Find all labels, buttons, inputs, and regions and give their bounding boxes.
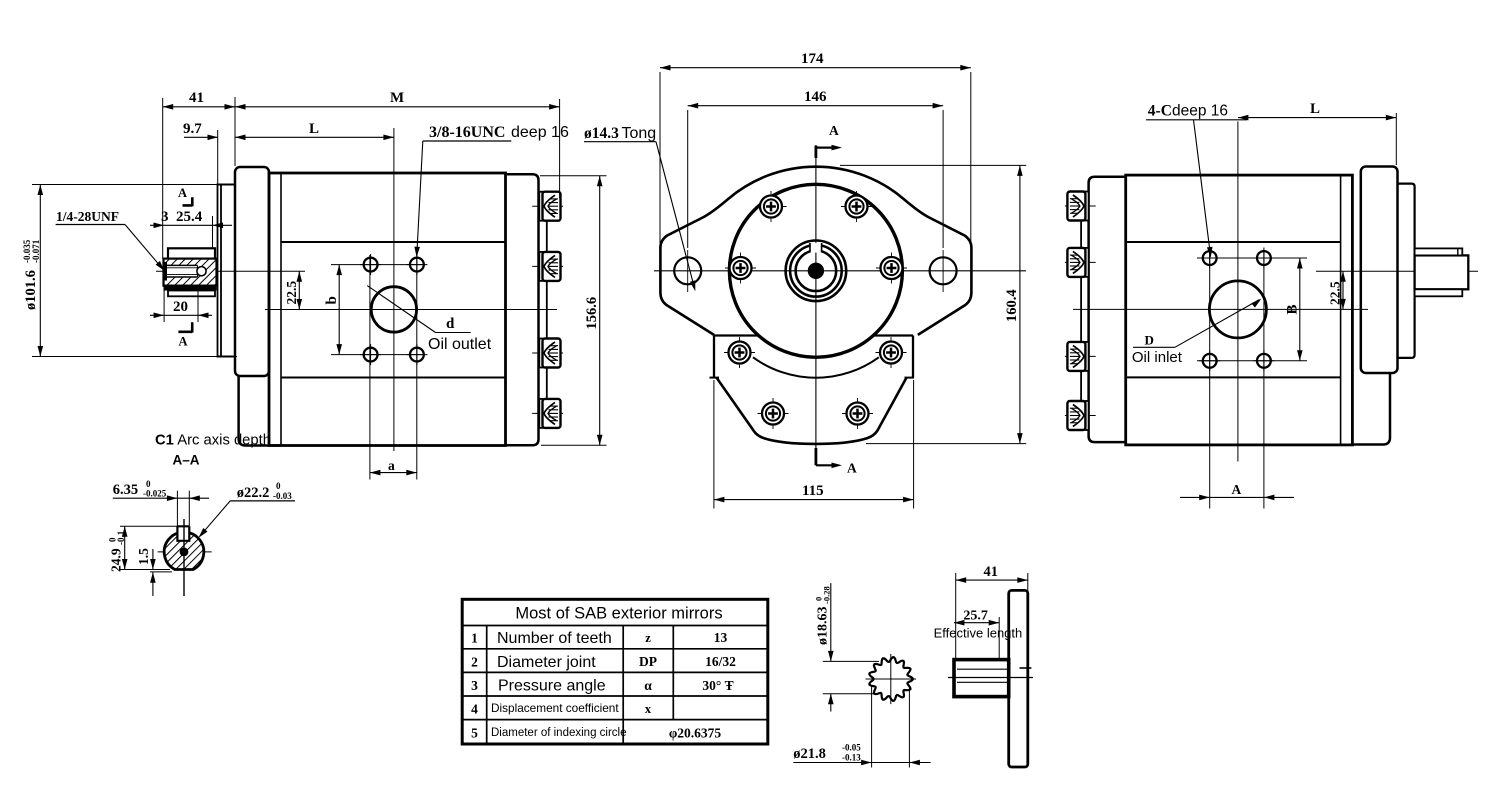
svg-text:6.35: 6.35 bbox=[113, 482, 138, 498]
svg-text:deep 16: deep 16 bbox=[511, 124, 569, 141]
svg-text:b: b bbox=[324, 296, 340, 304]
svg-text:-0.025: -0.025 bbox=[143, 489, 167, 499]
svg-text:3: 3 bbox=[471, 678, 478, 693]
svg-text:A: A bbox=[178, 186, 187, 200]
svg-text:-0.1: -0.1 bbox=[116, 530, 126, 545]
svg-text:L: L bbox=[1310, 101, 1320, 117]
svg-text:Oil outlet: Oil outlet bbox=[428, 336, 492, 353]
svg-text:-0.03: -0.03 bbox=[273, 491, 292, 501]
svg-text:156.6: 156.6 bbox=[584, 297, 600, 330]
svg-text:30° Ŧ: 30° Ŧ bbox=[702, 678, 733, 693]
svg-text:146: 146 bbox=[804, 89, 827, 105]
svg-text:115: 115 bbox=[802, 483, 824, 499]
svg-text:3: 3 bbox=[161, 209, 169, 225]
svg-text:a: a bbox=[388, 458, 395, 473]
svg-text:Displacement coefficient: Displacement coefficient bbox=[491, 701, 619, 715]
svg-text:1.5: 1.5 bbox=[136, 548, 151, 565]
svg-text:22.5: 22.5 bbox=[1328, 281, 1343, 305]
svg-text:13: 13 bbox=[714, 630, 728, 645]
svg-text:α: α bbox=[644, 678, 652, 693]
svg-text:-0.13: -0.13 bbox=[842, 753, 861, 763]
svg-text:M: M bbox=[390, 90, 404, 106]
svg-text:0: 0 bbox=[276, 481, 281, 491]
svg-text:z: z bbox=[645, 631, 651, 645]
svg-text:-0.28: -0.28 bbox=[822, 586, 832, 604]
svg-text:22.5: 22.5 bbox=[284, 281, 299, 305]
svg-text:3/8-16UNC: 3/8-16UNC bbox=[429, 124, 505, 141]
svg-text:25.7: 25.7 bbox=[963, 609, 988, 624]
svg-text:16/32: 16/32 bbox=[705, 654, 736, 669]
svg-text:41: 41 bbox=[189, 90, 204, 106]
svg-text:Diameter joint: Diameter joint bbox=[497, 654, 596, 671]
svg-text:25.4: 25.4 bbox=[176, 209, 203, 225]
svg-text:A: A bbox=[829, 123, 839, 138]
svg-text:1: 1 bbox=[471, 631, 478, 646]
svg-text:4-C: 4-C bbox=[1148, 103, 1172, 120]
svg-text:Number of teeth: Number of teeth bbox=[497, 630, 612, 647]
svg-text:160.4: 160.4 bbox=[1004, 289, 1020, 322]
svg-text:A–A: A–A bbox=[173, 453, 200, 468]
svg-text:2: 2 bbox=[471, 655, 478, 670]
svg-text:L: L bbox=[309, 121, 319, 137]
svg-text:Oil inlet: Oil inlet bbox=[1132, 349, 1183, 366]
svg-text:41: 41 bbox=[984, 564, 999, 580]
svg-text:C1 Arc axis depth: C1 Arc axis depth bbox=[155, 433, 271, 449]
svg-text:Diameter of indexing circle: Diameter of indexing circle bbox=[491, 727, 627, 739]
svg-text:ø22.2: ø22.2 bbox=[237, 485, 270, 501]
svg-text:20: 20 bbox=[173, 299, 188, 315]
svg-text:9.7: 9.7 bbox=[183, 121, 202, 137]
svg-text:1/4-28UNF: 1/4-28UNF bbox=[56, 209, 119, 224]
svg-text:5: 5 bbox=[471, 726, 478, 741]
svg-text:deep 16: deep 16 bbox=[1172, 103, 1228, 120]
svg-text:d: d bbox=[446, 316, 455, 332]
svg-text:-0.071: -0.071 bbox=[31, 239, 41, 263]
svg-text:Tong: Tong bbox=[622, 125, 657, 142]
svg-text:ø18.63: ø18.63 bbox=[816, 607, 831, 646]
svg-text:B: B bbox=[1285, 304, 1301, 314]
svg-text:φ20.6375: φ20.6375 bbox=[669, 726, 722, 741]
svg-text:DP: DP bbox=[639, 654, 657, 669]
svg-text:ø21.8: ø21.8 bbox=[793, 746, 826, 762]
svg-text:Effective length: Effective length bbox=[934, 626, 1023, 641]
svg-text:A: A bbox=[847, 461, 857, 476]
svg-text:-0.05: -0.05 bbox=[842, 743, 861, 753]
svg-text:0: 0 bbox=[146, 479, 151, 489]
svg-text:A: A bbox=[179, 335, 188, 349]
svg-text:Most of SAB exterior mirrors: Most of SAB exterior mirrors bbox=[515, 605, 722, 623]
svg-text:x: x bbox=[645, 702, 652, 716]
svg-text:Pressure angle: Pressure angle bbox=[498, 678, 606, 695]
svg-text:ø14.3: ø14.3 bbox=[584, 125, 619, 142]
svg-text:24.9: 24.9 bbox=[109, 548, 124, 572]
svg-text:174: 174 bbox=[801, 51, 824, 67]
svg-text:D: D bbox=[1145, 332, 1154, 347]
svg-text:ø101.6: ø101.6 bbox=[23, 270, 39, 310]
svg-text:A: A bbox=[1232, 482, 1242, 497]
svg-text:4: 4 bbox=[471, 702, 478, 717]
